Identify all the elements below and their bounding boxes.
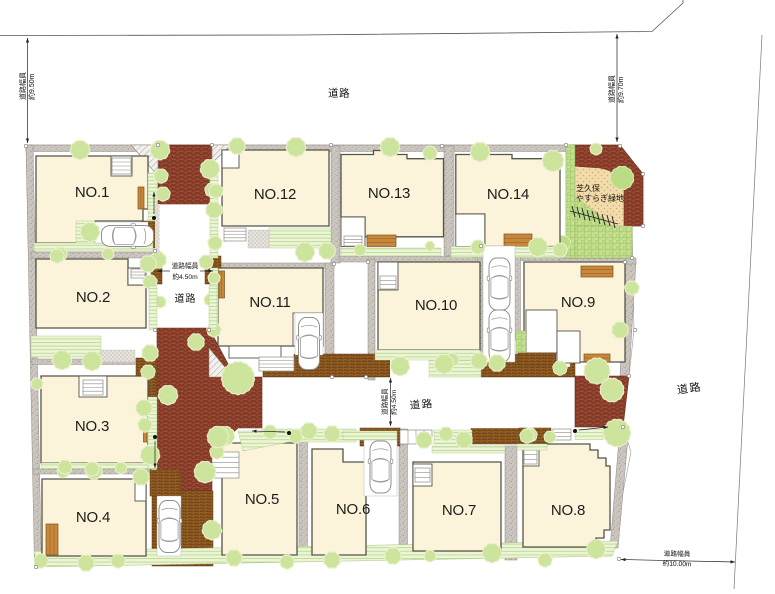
svg-text:NO.10: NO.10 <box>415 297 457 314</box>
svg-text:芝久保: 芝久保 <box>576 183 600 193</box>
svg-text:道路幅員: 道路幅員 <box>18 72 27 100</box>
svg-text:道路: 道路 <box>409 397 434 412</box>
svg-text:NO.3: NO.3 <box>75 418 109 435</box>
svg-text:NO.5: NO.5 <box>245 491 279 508</box>
svg-text:道路幅員: 道路幅員 <box>172 261 199 270</box>
svg-text:NO.7: NO.7 <box>442 502 476 519</box>
svg-text:NO.11: NO.11 <box>249 294 290 311</box>
svg-text:やすらぎ緑地: やすらぎ緑地 <box>576 193 624 203</box>
svg-text:約9.50m: 約9.50m <box>27 73 36 100</box>
svg-text:NO.2: NO.2 <box>76 289 110 306</box>
svg-text:道路幅員: 道路幅員 <box>380 388 389 415</box>
svg-text:道路: 道路 <box>328 87 350 100</box>
svg-text:NO.13: NO.13 <box>368 185 410 202</box>
svg-text:道路: 道路 <box>175 292 197 305</box>
svg-text:NO.4: NO.4 <box>76 509 110 526</box>
svg-text:道路幅員: 道路幅員 <box>664 549 691 558</box>
svg-text:NO.6: NO.6 <box>336 501 370 518</box>
svg-text:約4.50m: 約4.50m <box>172 272 198 281</box>
svg-text:道路幅員: 道路幅員 <box>607 75 616 103</box>
svg-text:NO.12: NO.12 <box>254 186 296 203</box>
svg-text:NO.8: NO.8 <box>551 502 585 519</box>
svg-text:約9.70m: 約9.70m <box>616 76 625 103</box>
svg-text:約4.50m: 約4.50m <box>389 389 398 415</box>
svg-text:NO.1: NO.1 <box>75 184 109 201</box>
svg-text:NO.14: NO.14 <box>487 186 529 203</box>
svg-text:NO.9: NO.9 <box>561 294 595 311</box>
